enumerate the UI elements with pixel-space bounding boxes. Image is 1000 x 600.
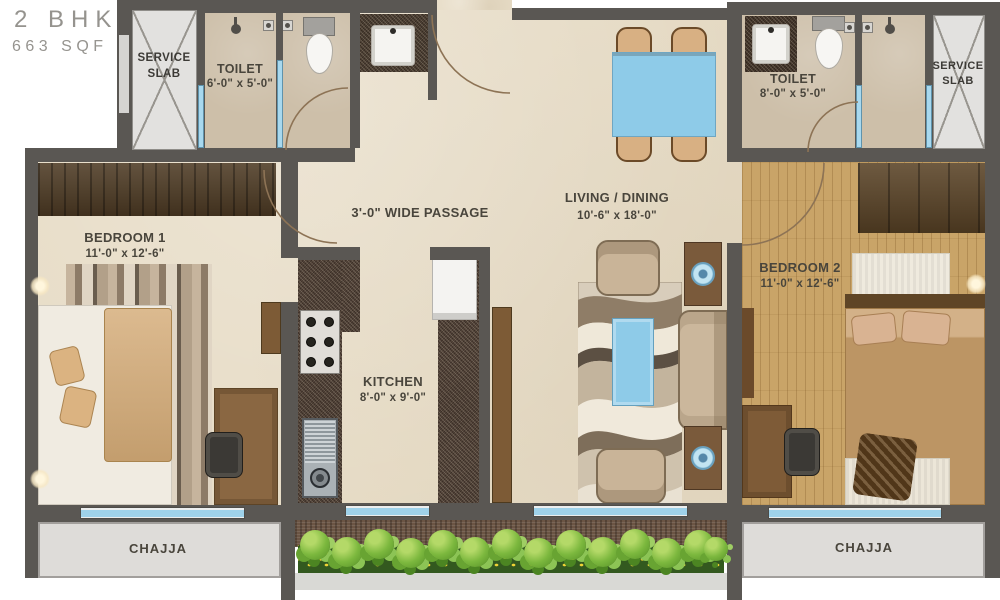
faucet-icon	[390, 28, 396, 34]
room-label: LIVING / DINING	[565, 190, 669, 205]
bush-icon	[620, 529, 650, 559]
sofa	[678, 310, 728, 430]
tv-panel	[742, 308, 754, 398]
bush-icon	[364, 529, 394, 559]
room-dims: 8'-0" x 5'-0"	[760, 88, 826, 100]
room-dims: 11'-0" x 12'-6"	[85, 248, 164, 260]
bush-icon	[332, 537, 362, 567]
shower-icon	[231, 24, 241, 34]
wall-lamp-icon	[966, 274, 986, 294]
ventilator	[926, 85, 932, 148]
duvet	[104, 308, 172, 462]
wall	[512, 8, 740, 20]
burner-icon	[324, 357, 334, 367]
burner-icon	[324, 317, 334, 327]
planter-edge	[295, 573, 727, 590]
bush-icon	[300, 530, 330, 560]
vent-fan-icon	[282, 20, 293, 31]
dresser	[852, 253, 950, 298]
room-label: SERVICE	[933, 60, 984, 72]
room-label: CHAJJA	[835, 540, 893, 555]
room-dims: 6'-0" x 5'-0"	[207, 78, 273, 90]
burner-icon	[324, 337, 334, 347]
desk-chair	[784, 428, 820, 476]
window	[768, 507, 942, 519]
wall	[25, 148, 355, 162]
room-label: SLAB	[148, 68, 181, 80]
room-dims: 10'-6" x 18'-0"	[577, 210, 657, 222]
wall	[727, 508, 742, 600]
pillow	[901, 310, 952, 346]
service-door	[119, 35, 129, 113]
faucet-icon	[768, 27, 774, 33]
bush-icon	[524, 538, 554, 568]
room-dims: 8'-0" x 9'-0"	[360, 392, 426, 404]
wall	[985, 13, 1000, 578]
wardrobe	[38, 163, 276, 216]
plan-area: 663 SQF	[12, 38, 108, 56]
room-dims: 11'-0" x 12'-6"	[760, 278, 839, 290]
window	[345, 505, 430, 517]
room-label: BEDROOM 1	[84, 230, 165, 245]
wall	[430, 247, 490, 260]
bush-icon	[460, 537, 490, 567]
room-label: SLAB	[942, 75, 974, 87]
desk-chair	[205, 432, 243, 478]
bush-icon	[704, 537, 728, 561]
room-label: KITCHEN	[363, 374, 423, 389]
shower-icon	[885, 24, 895, 34]
wall	[281, 162, 298, 258]
bush-icon	[492, 529, 522, 559]
coffee-table	[612, 318, 654, 406]
wall	[727, 2, 1000, 15]
wall-lamp-icon	[30, 276, 50, 296]
throw-blanket	[852, 432, 918, 501]
room-label: BEDROOM 2	[759, 260, 840, 275]
headboard	[845, 294, 985, 308]
vent-fan-icon	[844, 22, 855, 33]
room-label: TOILET	[217, 62, 263, 76]
kitchen-counter	[342, 260, 360, 332]
armchair	[596, 448, 666, 504]
room-label: CHAJJA	[129, 541, 187, 556]
refrigerator	[432, 258, 477, 320]
vent-fan-icon	[263, 20, 274, 31]
vent-fan-icon	[862, 22, 873, 33]
window	[80, 507, 245, 519]
plan-title: 2 BHK	[14, 6, 118, 34]
wardrobe	[858, 163, 985, 233]
ventilator	[277, 60, 283, 148]
pillow	[851, 312, 898, 346]
bush-icon	[556, 530, 586, 560]
wall	[298, 247, 360, 260]
shower-room-floor	[862, 13, 925, 148]
wall	[479, 260, 490, 508]
plant-pot	[691, 262, 715, 286]
bush-icon	[588, 537, 618, 567]
window	[533, 505, 688, 517]
bush-icon	[396, 538, 426, 568]
room-label: TOILET	[770, 72, 816, 86]
wall	[350, 0, 360, 148]
bush-icon	[428, 530, 458, 560]
wall	[428, 0, 437, 100]
burner-icon	[306, 317, 316, 327]
wall	[727, 243, 742, 508]
wall	[281, 302, 298, 508]
ventilator	[856, 85, 862, 148]
room-label: 3'-0" WIDE PASSAGE	[351, 205, 488, 220]
bedroom-1-door-leaf	[261, 302, 281, 354]
wall-lamp-icon	[30, 469, 50, 489]
ventilator	[198, 85, 204, 148]
floor-plan: 2 BHK 663 SQF SERVICE SLAB SERVICE SLAB …	[0, 0, 1000, 600]
wall	[727, 13, 742, 162]
burner-icon	[306, 337, 316, 347]
plant-pot	[691, 446, 715, 470]
dining-table	[612, 52, 716, 137]
sink-basin	[310, 468, 330, 488]
bush-icon	[652, 538, 682, 568]
armchair	[596, 240, 660, 296]
kitchen-door-leaf	[492, 307, 512, 503]
entry-threshold-floor	[437, 0, 512, 10]
burner-icon	[306, 357, 316, 367]
service-slab	[132, 10, 197, 150]
room-label: SERVICE	[137, 52, 190, 64]
sink-drainboard	[305, 421, 335, 463]
